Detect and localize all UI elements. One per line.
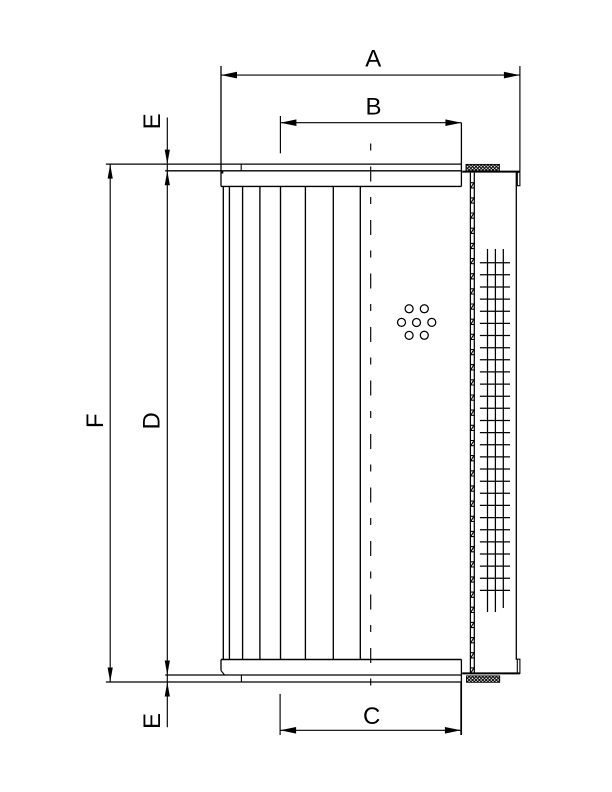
svg-text:A: A — [365, 46, 381, 73]
svg-text:D: D — [138, 412, 165, 429]
svg-text:E: E — [139, 713, 166, 729]
svg-text:B: B — [365, 94, 381, 121]
svg-text:C: C — [363, 703, 380, 730]
svg-text:F: F — [82, 413, 109, 428]
svg-text:E: E — [139, 113, 166, 129]
